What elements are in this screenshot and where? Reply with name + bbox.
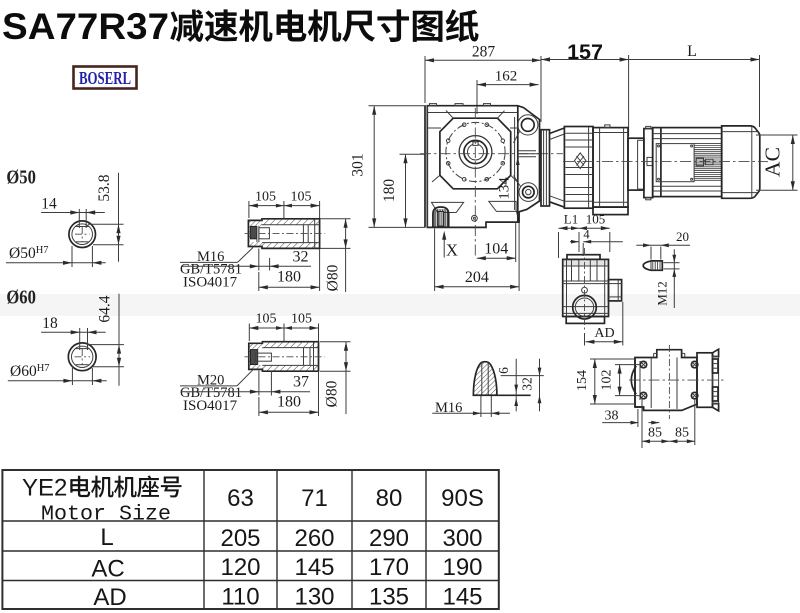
svg-text:53.8: 53.8 <box>96 174 113 201</box>
svg-text:Ø80: Ø80 <box>324 380 341 407</box>
svg-text:180: 180 <box>381 179 398 203</box>
svg-text:145: 145 <box>294 554 334 581</box>
svg-text:20: 20 <box>676 229 689 244</box>
svg-text:105: 105 <box>255 190 276 205</box>
svg-text:Ø50: Ø50 <box>6 167 36 189</box>
svg-text:130: 130 <box>294 584 334 611</box>
svg-text:4: 4 <box>583 228 590 242</box>
svg-text:190: 190 <box>442 554 482 581</box>
svg-text:85: 85 <box>675 426 689 441</box>
svg-text:180: 180 <box>277 269 301 286</box>
svg-text:157: 157 <box>567 40 603 64</box>
svg-text:L: L <box>687 43 697 60</box>
svg-text:ISO4017: ISO4017 <box>183 398 238 414</box>
svg-text:287: 287 <box>472 44 496 61</box>
svg-text:180: 180 <box>277 394 301 411</box>
svg-text:Ø80: Ø80 <box>325 264 342 291</box>
svg-text:32: 32 <box>293 249 309 266</box>
svg-text:AD: AD <box>93 584 126 611</box>
svg-text:105: 105 <box>291 190 312 205</box>
svg-text:162: 162 <box>495 69 518 85</box>
svg-text:BOSERL: BOSERL <box>79 68 131 88</box>
svg-text:80: 80 <box>376 485 403 512</box>
svg-text:134: 134 <box>497 177 513 200</box>
svg-text:M12: M12 <box>655 281 670 306</box>
svg-text:102: 102 <box>600 370 615 391</box>
svg-text:204: 204 <box>465 269 489 286</box>
svg-text:145: 145 <box>442 584 482 611</box>
svg-text:71: 71 <box>301 485 328 512</box>
svg-text:14: 14 <box>41 196 57 213</box>
svg-text:135: 135 <box>369 584 409 611</box>
svg-text:Motor Size: Motor Size <box>41 503 171 527</box>
svg-text:110: 110 <box>221 584 259 611</box>
svg-text:154: 154 <box>575 370 590 391</box>
svg-text:300: 300 <box>442 525 482 552</box>
svg-text:X: X <box>446 241 458 260</box>
svg-text:32: 32 <box>520 377 535 391</box>
svg-text:Ø60: Ø60 <box>6 287 36 309</box>
svg-text:YE2: YE2 <box>22 475 67 502</box>
svg-text:64.4: 64.4 <box>97 295 114 322</box>
svg-text:205: 205 <box>220 525 260 552</box>
svg-text:6: 6 <box>496 367 511 374</box>
svg-text:ISO4017: ISO4017 <box>183 275 238 291</box>
svg-text:SA77R37: SA77R37 <box>2 5 169 47</box>
svg-text:AD: AD <box>594 326 614 341</box>
svg-text:90S: 90S <box>441 485 484 512</box>
svg-text:AC: AC <box>761 147 785 177</box>
svg-text:105: 105 <box>291 312 312 327</box>
svg-text:170: 170 <box>369 554 409 581</box>
svg-text:63: 63 <box>227 485 254 512</box>
svg-text:L1: L1 <box>564 212 578 227</box>
svg-text:38: 38 <box>605 409 619 424</box>
svg-text:260: 260 <box>294 525 334 552</box>
svg-text:105: 105 <box>586 212 606 227</box>
svg-text:18: 18 <box>42 315 58 332</box>
svg-text:290: 290 <box>369 525 409 552</box>
svg-text:104: 104 <box>484 241 508 258</box>
svg-text:37: 37 <box>293 374 309 391</box>
svg-text:120: 120 <box>220 554 260 581</box>
svg-text:AC: AC <box>91 556 124 583</box>
svg-text:L: L <box>100 524 113 551</box>
svg-text:301: 301 <box>350 153 367 176</box>
svg-text:85: 85 <box>648 426 662 441</box>
svg-text:105: 105 <box>256 312 277 327</box>
